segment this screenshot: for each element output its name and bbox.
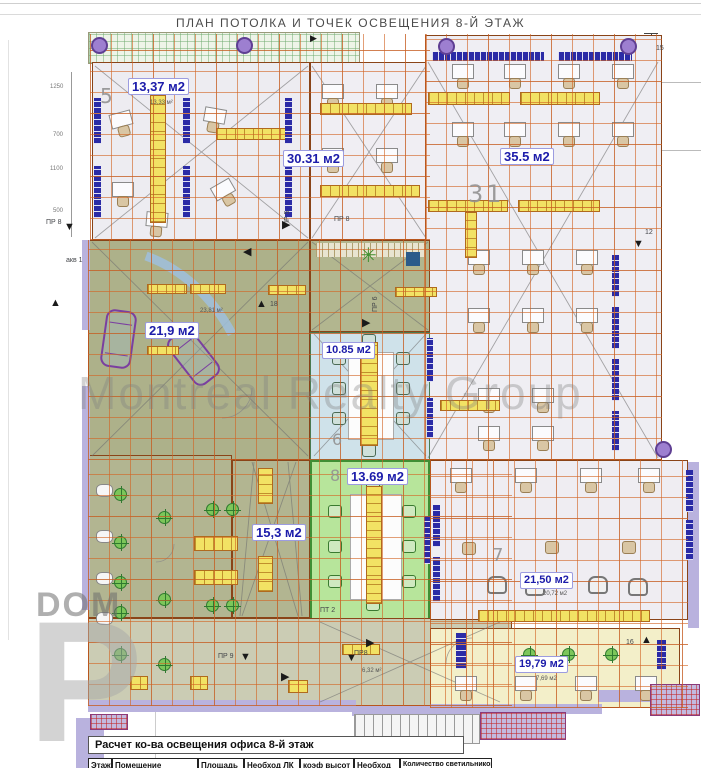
window-band xyxy=(686,520,693,560)
room-number-8: 8 xyxy=(330,466,340,485)
toilet xyxy=(96,484,113,497)
workstation xyxy=(612,122,634,137)
armchair xyxy=(588,576,608,594)
workstation xyxy=(576,250,598,265)
marker-pr9: ПР 9 xyxy=(218,653,234,660)
toilet xyxy=(96,530,113,543)
workstation xyxy=(612,64,634,79)
small-area-text: 13,33 м² xyxy=(150,100,173,106)
chair xyxy=(622,541,636,554)
marker-pr8-left: ПР 8 xyxy=(46,219,62,226)
marker-18: 18 xyxy=(270,301,278,308)
toilet xyxy=(96,572,113,585)
small-area-text: 23,81 м² xyxy=(200,308,223,314)
workstation xyxy=(455,676,477,691)
armchair xyxy=(628,578,648,596)
chair xyxy=(402,575,416,588)
marker-pt2: ПТ 2 xyxy=(320,607,335,614)
calc-header-cell: Площадь xyxy=(198,758,244,768)
chair xyxy=(328,505,342,518)
light-strip xyxy=(150,95,166,223)
light-strip xyxy=(395,287,437,297)
triangle-marker: ▲ xyxy=(50,298,61,309)
area-label-room8: 13.69 м2 xyxy=(347,468,408,485)
calc-table-header-row: Этаж Помещение Площадь Необход ЛК коэф в… xyxy=(88,758,492,768)
chair xyxy=(402,540,416,553)
triangle-marker: ▼ xyxy=(64,222,75,233)
light-strip xyxy=(465,212,477,258)
ceiling-light-green xyxy=(158,511,171,524)
window-band xyxy=(657,640,666,670)
floor-plan-page: ПЛАН ПОТОЛКА И ТОЧЕК ОСВЕЩЕНИЯ 8-Й ЭТАЖ xyxy=(0,0,701,768)
marker-15: 15 xyxy=(656,45,664,52)
workstation xyxy=(515,468,537,483)
area-label-room30: 30.31 м2 xyxy=(283,150,344,167)
chair xyxy=(462,542,476,555)
calc-header-cell: Необход xyxy=(354,758,400,768)
triangle-marker: ▼ xyxy=(633,239,644,250)
workstation xyxy=(504,64,526,79)
room-5 xyxy=(92,62,310,240)
column-circle xyxy=(655,441,672,458)
chair xyxy=(328,575,342,588)
window-band xyxy=(456,633,466,669)
triangle-marker: ▶ xyxy=(366,638,374,649)
ceiling-light-green xyxy=(605,648,618,661)
title-separator-line xyxy=(0,14,701,15)
marker-16: 16 xyxy=(626,639,634,646)
area-label-room6: 10.85 м2 xyxy=(322,342,375,359)
triangle-marker: ▲ xyxy=(641,635,652,646)
light-strip xyxy=(518,200,600,212)
column-circle xyxy=(236,37,253,54)
plant-icon: ✳ xyxy=(360,246,377,266)
workstation xyxy=(638,468,660,483)
room-number-31: 31 xyxy=(468,180,505,208)
window-band xyxy=(612,359,619,401)
workstation xyxy=(478,426,500,441)
window-band xyxy=(612,307,619,349)
dimension-label: 500 xyxy=(53,208,63,214)
calc-table: Расчет ко-ва освещения офиса 8-й этаж Эт… xyxy=(88,736,492,768)
window-band xyxy=(558,52,632,61)
left-margin-line xyxy=(8,40,9,640)
marker-akv1: акв 1 xyxy=(66,257,83,264)
hatched-wall-box xyxy=(480,712,566,740)
light-strip xyxy=(428,92,510,105)
ceiling-light-green xyxy=(158,593,171,606)
column-circle xyxy=(438,38,455,55)
cabinet-box xyxy=(406,252,420,266)
watermark-brand: Montreal Realty Group xyxy=(78,366,583,420)
sub-area-label: 7,69 м2 xyxy=(536,676,557,682)
calc-table-title: Расчет ко-ва освещения офиса 8-й этаж xyxy=(88,736,464,754)
workstation xyxy=(376,148,398,163)
left-dimension-line xyxy=(71,72,72,237)
area-label-room19: 19,79 м2 xyxy=(515,656,568,673)
light-strip xyxy=(268,285,306,295)
area-label-room5: 13,37 м2 xyxy=(128,78,189,95)
dim15-bar xyxy=(644,33,658,34)
chair xyxy=(328,540,342,553)
workstation xyxy=(322,84,344,99)
workstation xyxy=(452,122,474,137)
column-circle xyxy=(620,38,637,55)
window-band xyxy=(94,166,101,218)
workstation xyxy=(522,308,544,323)
marker-pr6: ПР 6 xyxy=(372,296,379,312)
light-strip xyxy=(190,284,226,294)
calc-header-cell: Этаж xyxy=(88,758,112,768)
ceiling-light-green xyxy=(114,488,127,501)
area-label-corridor: 15,3 м2 xyxy=(252,524,306,541)
workstation xyxy=(558,122,580,137)
area-label-room7: 21,50 м2 xyxy=(520,572,573,589)
window-band xyxy=(183,98,190,144)
light-strip xyxy=(216,128,292,140)
workstation xyxy=(576,308,598,323)
chair xyxy=(545,541,559,554)
workstation xyxy=(575,676,597,691)
light-strip xyxy=(258,556,273,592)
sink-counter xyxy=(194,570,238,585)
workstation xyxy=(468,308,490,323)
light-strip xyxy=(258,468,273,504)
area-label-car-zone: 21,9 м2 xyxy=(145,322,199,339)
window-band xyxy=(686,470,693,512)
triangle-marker: ▲ xyxy=(256,299,267,310)
window-band xyxy=(433,505,440,547)
chair xyxy=(402,505,416,518)
light-strip xyxy=(147,346,179,355)
light-strip xyxy=(320,185,420,197)
triangle-marker: ▼ xyxy=(346,653,357,664)
triangle-marker: ◀ xyxy=(243,247,251,258)
workstation xyxy=(532,426,554,441)
ceiling-light-green xyxy=(206,599,219,612)
triangle-marker: ▶ xyxy=(282,220,290,231)
column-circle xyxy=(91,37,108,54)
ceiling-light-green xyxy=(206,503,219,516)
ceiling-light-green xyxy=(226,599,239,612)
workstation xyxy=(515,676,537,691)
sink-counter xyxy=(194,536,238,551)
wall-strip xyxy=(82,240,90,330)
workstation xyxy=(522,250,544,265)
calc-header-cell: Количество светильников xyxy=(400,758,492,768)
window-band xyxy=(612,255,619,297)
workstation xyxy=(452,64,474,79)
room-number-6: 6 xyxy=(332,430,342,449)
window-band xyxy=(424,516,430,564)
calc-header-cell: Необход ЛК xyxy=(244,758,300,768)
chair xyxy=(396,352,410,365)
top-border-line xyxy=(0,3,701,4)
plan-title: ПЛАН ПОТОЛКА И ТОЧЕК ОСВЕЩЕНИЯ 8-Й ЭТАЖ xyxy=(0,16,701,30)
triangle-marker: ▼ xyxy=(240,652,251,663)
armchair xyxy=(487,576,507,594)
triangle-marker: ▶ xyxy=(281,672,289,683)
triangle-marker: ▶ xyxy=(362,318,370,329)
window-band xyxy=(433,557,440,602)
sub-area-label: 20,72 м2 xyxy=(543,591,567,597)
workstation xyxy=(112,182,134,197)
light-strip xyxy=(147,284,187,294)
dimension-label: 700 xyxy=(53,132,63,138)
light-strip xyxy=(190,676,208,690)
conference-table-8 xyxy=(366,486,382,604)
dimension-label: 1100 xyxy=(50,166,63,172)
light-strip xyxy=(520,92,600,105)
small-area-text: 6,32 м² xyxy=(362,668,381,674)
calc-header-cell: Помещение xyxy=(112,758,198,768)
room-number-5: 5 xyxy=(100,84,113,108)
window-band xyxy=(285,98,292,144)
area-label-room31: 35.5 м2 xyxy=(500,148,554,165)
ceiling-light-green xyxy=(158,658,171,671)
window-band xyxy=(183,166,190,218)
hatch-strip-top xyxy=(88,32,360,64)
light-strip xyxy=(288,680,308,693)
workstation xyxy=(580,468,602,483)
calc-header-cell: коэф высот xyxy=(300,758,354,768)
marker-12: 12 xyxy=(645,229,653,236)
workstation xyxy=(558,64,580,79)
workstation xyxy=(450,468,472,483)
triangle-marker: ▶ xyxy=(310,34,317,43)
workstation xyxy=(504,122,526,137)
ceiling-light-green xyxy=(114,536,127,549)
marker-pr8-mid: ПР 8 xyxy=(334,216,350,223)
workstation xyxy=(376,84,398,99)
light-strip xyxy=(478,610,650,622)
room-number-7: 7 xyxy=(492,545,503,566)
dimension-label: 1250 xyxy=(50,84,63,90)
light-strip xyxy=(320,103,412,115)
hatched-wall-box xyxy=(650,684,700,716)
ceiling-light-green xyxy=(226,503,239,516)
window-band xyxy=(612,411,619,451)
